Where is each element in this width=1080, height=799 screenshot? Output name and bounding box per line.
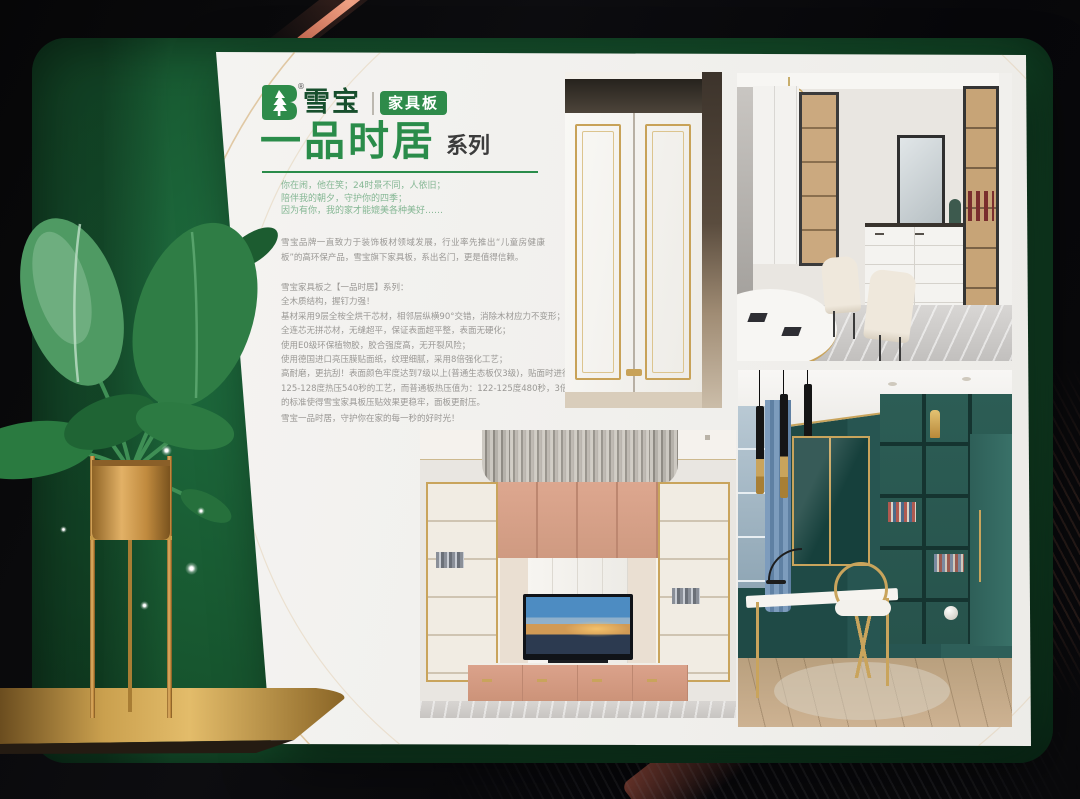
spotlight xyxy=(888,382,897,386)
feature-line: 使用E0级环保植物胶，胶合强度高，无开裂风险； xyxy=(281,339,588,353)
gold-drawer-handles xyxy=(482,679,678,682)
pendant-light xyxy=(756,406,764,494)
feature-line: 全连芯无拼芯材，无缝超平，保证表面超平整，表面无硬化； xyxy=(281,324,588,338)
poem-line: 陪伴我的朝夕，守护你的四季； xyxy=(281,193,445,206)
poem-text: 你在闹，他在笑；24时景不同，人依旧； 陪伴我的朝夕，守护你的四季； 因为有你，… xyxy=(281,180,445,218)
spotlight xyxy=(962,377,971,381)
poem-line: 你在闹，他在笑；24时景不同，人依旧； xyxy=(281,180,445,193)
wine-bottles xyxy=(968,191,994,221)
pendant-cord xyxy=(783,370,784,394)
desk-lamp-base xyxy=(766,580,786,584)
photo-dining-room xyxy=(737,73,1012,361)
intro-paragraph: 雪宝品牌一直致力于装饰板材领域发展，行业率先推出“儿童房健康板”的高环保产品，雪… xyxy=(281,236,545,266)
features-paragraph: 雪宝家具板之【一品时居】系列： 全木质结构，握钉力强！ 基材采用9层全桉全烘干芯… xyxy=(281,281,588,411)
glass-door-cabinet xyxy=(792,436,870,566)
brand-name: 雪宝 xyxy=(303,86,361,119)
pendant-cord xyxy=(759,370,760,406)
title-underline xyxy=(262,171,538,173)
baseboard xyxy=(565,392,702,408)
potted-plant xyxy=(0,210,300,730)
dining-chair xyxy=(863,268,917,343)
books xyxy=(436,552,464,568)
feature-line: 使用德国进口亮压膜贴面纸，纹理细腻，采用8倍强化工艺； xyxy=(281,353,588,367)
drawer-handles xyxy=(875,233,955,235)
pendant-light xyxy=(780,394,788,498)
poem-line: 因为有你，我的家才能媲美各种美好…… xyxy=(281,205,445,218)
decor-sphere xyxy=(944,606,958,620)
photo-wardrobe xyxy=(565,72,722,408)
feature-line: 基材采用9层全桉全烘干芯材，相邻层纵横90°交错，消除木材应力不变形； xyxy=(281,310,588,324)
white-cabinet xyxy=(753,86,799,264)
poster-stage: ® 雪宝 家具板 一品时居 系列 你在闹，他在笑；24时景不同，人依旧； 陪伴我… xyxy=(0,0,1080,799)
gold-ornament xyxy=(930,410,940,438)
feature-line: 全木质结构，握钉力强！ xyxy=(281,295,588,309)
teal-tall-door xyxy=(970,434,1012,646)
placemat xyxy=(781,327,801,336)
series-title-suffix: 系列 xyxy=(446,130,490,164)
sparkle xyxy=(161,445,172,456)
brand-divider xyxy=(372,92,374,115)
gold-door-trim-inner xyxy=(652,131,684,373)
closing-line: 雪宝一品时居，守护你在家的每一秒的好时光！ xyxy=(281,412,460,424)
dining-table xyxy=(737,289,837,361)
tree-icon xyxy=(262,85,297,120)
white-column xyxy=(999,73,1012,325)
door-seam xyxy=(633,113,635,392)
category-badge: 家具板 xyxy=(380,91,447,115)
chair-legs xyxy=(833,311,835,337)
feature-line: 的标准使得雪宝家具板压贴效果更稳牢，面板更耐压。 xyxy=(281,396,588,410)
display-cabinet xyxy=(799,92,839,266)
walnut-pillar xyxy=(702,72,722,408)
sparkle xyxy=(197,507,205,515)
pendant-cord xyxy=(807,370,808,384)
series-title-main: 一品时居 xyxy=(260,118,436,164)
sparkle xyxy=(185,562,198,575)
tv-screen xyxy=(526,597,630,654)
gold-door-handle xyxy=(979,510,981,582)
dark-beam xyxy=(565,79,705,113)
sparkle xyxy=(60,526,67,533)
ceiling xyxy=(565,72,722,79)
photo-study-room xyxy=(738,370,1012,727)
gold-door-trim-inner xyxy=(582,131,614,373)
green-vase xyxy=(949,199,961,226)
sparkle xyxy=(140,601,149,610)
glass-cabinet-right xyxy=(658,482,730,682)
books xyxy=(672,588,700,604)
desk-leg xyxy=(756,602,759,698)
glass-cabinet-left xyxy=(426,482,498,682)
gold-chair-legs xyxy=(840,616,886,678)
placemat xyxy=(747,313,767,322)
vanity-mirror xyxy=(897,135,945,227)
salmon-upper-cabinets xyxy=(498,482,658,558)
chair-legs xyxy=(879,335,881,361)
books xyxy=(888,502,916,522)
feature-line: 125-128度热压540秒的工艺，而普通板热压值为：122-125度480秒，… xyxy=(281,382,588,396)
gold-handle xyxy=(626,369,642,376)
marble-floor xyxy=(420,701,736,718)
salmon-base-cabinet xyxy=(468,663,688,701)
series-title: 一品时居 系列 xyxy=(260,118,490,164)
dining-chair xyxy=(821,256,862,315)
photo-tv-wall xyxy=(420,430,736,718)
mirror-strip xyxy=(737,87,753,295)
features-heading: 雪宝家具板之【一品时居】系列： xyxy=(281,281,588,295)
books xyxy=(934,554,964,572)
feature-line: 高耐磨，更抗刮！表面颜色牢度达到7级以上(普通生态板仅3级)，贴面时进行了 xyxy=(281,367,588,381)
gold-pot xyxy=(92,460,170,540)
chair-cushion xyxy=(835,600,891,616)
